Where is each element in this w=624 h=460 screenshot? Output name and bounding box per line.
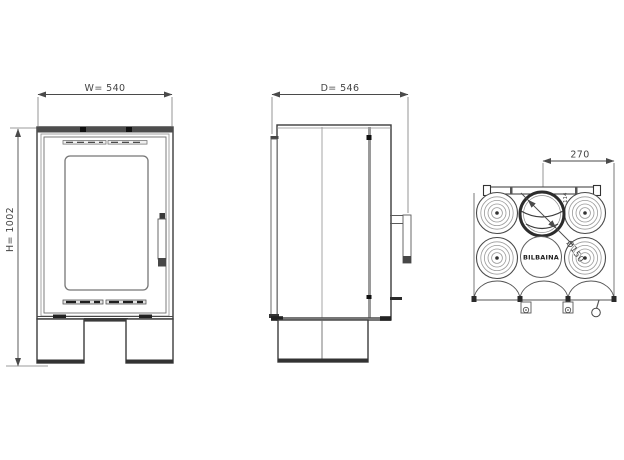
underside-shadow <box>84 318 128 322</box>
stove-dimension-drawing: W= 540 H= 1002 <box>0 0 624 460</box>
base-bracket <box>53 315 66 319</box>
top-plate-bolt <box>126 127 132 132</box>
front-view: W= 540 H= 1002 <box>5 83 173 366</box>
damper-lever <box>390 297 402 300</box>
dimension-width: W= 540 <box>38 83 172 126</box>
stove-side-body <box>277 125 391 320</box>
panel-seam-wide <box>368 127 371 318</box>
top-plate-edge <box>37 127 173 133</box>
dim-width-label: W= 540 <box>85 83 126 94</box>
seam-bolt <box>367 135 372 140</box>
seam-bolt <box>367 295 372 299</box>
dim-flue-offset-label: 270 <box>570 150 589 161</box>
handle-knob-top <box>592 300 601 317</box>
top-view: 270 Ø150 114 <box>472 150 617 317</box>
side-view: D= 546 <box>269 83 411 362</box>
leg-right <box>126 319 173 363</box>
leg-left <box>37 319 84 363</box>
front-foot-tab <box>521 302 531 313</box>
dim-depth-label: D= 546 <box>321 83 360 94</box>
door-handle-side <box>390 215 411 263</box>
technical-drawing-canvas: W= 540 H= 1002 <box>0 0 624 460</box>
top-plate-bolt <box>80 127 86 132</box>
front-scallop-edge <box>472 281 617 317</box>
brand-plate: BILBAINA <box>521 237 562 278</box>
leg-block-side <box>278 320 368 362</box>
door-handle-front <box>158 213 166 267</box>
top-vent <box>63 141 147 145</box>
brand-label: BILBAINA <box>523 254 559 262</box>
base-bracket <box>139 315 152 319</box>
collar-dim-label: 114 <box>563 192 569 203</box>
dim-height-label: H= 1002 <box>5 207 16 252</box>
front-foot-tab <box>563 302 573 313</box>
